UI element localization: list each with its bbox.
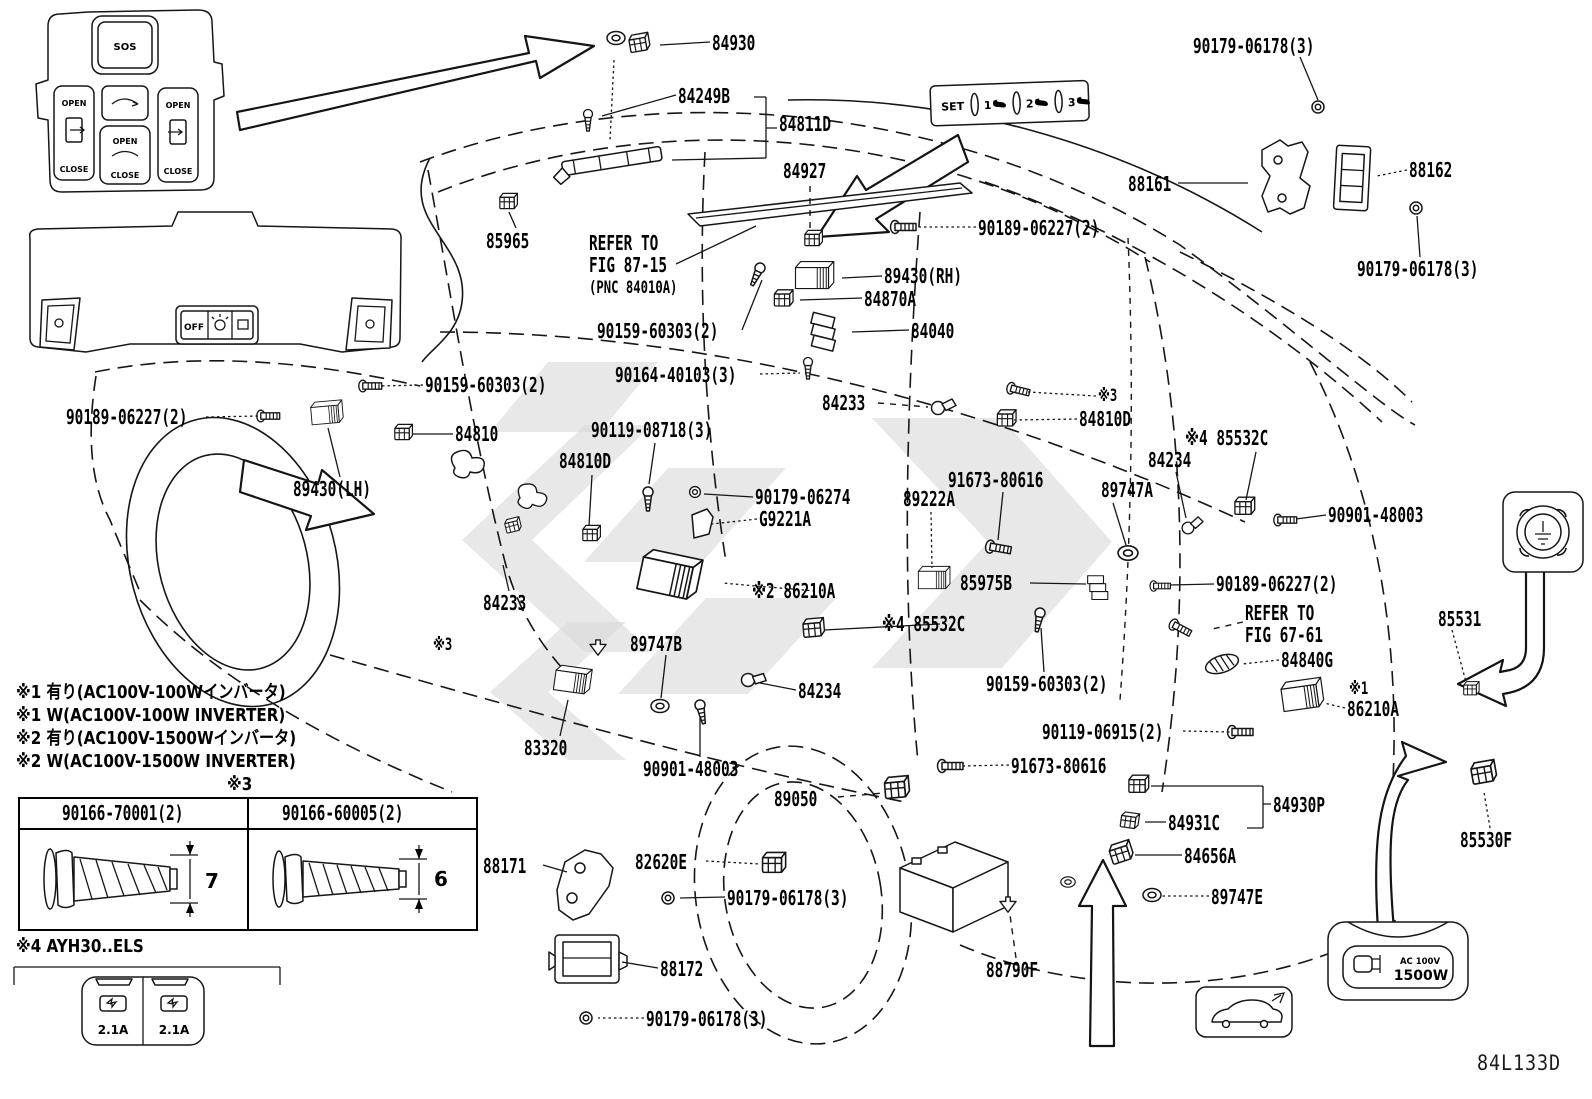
part-label: 84234 (1148, 450, 1191, 470)
fastener-table: 90166-70001(2) 90166-60005(2) 7 6 (18, 797, 478, 931)
part-label: ※4 85532C (1185, 428, 1268, 448)
part-label: 90159-60303(2) (425, 375, 546, 395)
part-label: 84810D (1079, 409, 1131, 429)
part-label: 84249B (678, 86, 730, 106)
part-label: 84930 (712, 33, 755, 53)
part-label: (PNC 84010A) (589, 280, 677, 297)
part-label: 88172 (660, 959, 703, 979)
part-label: 90179-06178(3) (1357, 259, 1478, 279)
parts-diagram-canvas: SOS OPEN CLOSE OPEN CLOSE OPEN CLOSE OFF… (0, 0, 1592, 1099)
part-label: 90179-06178(3) (646, 1009, 767, 1029)
part-label: 90189-06227(2) (978, 218, 1099, 238)
part-label: 84040 (911, 321, 954, 341)
part-label: 90179-06178(3) (727, 888, 848, 908)
part-label: 84930P (1273, 795, 1325, 815)
part-label: 85530F (1460, 830, 1512, 850)
part-label: 90901-48003 (1328, 505, 1423, 525)
footnote: ※3 (227, 776, 252, 794)
part-label: 90189-06227(2) (1216, 574, 1337, 594)
screw-dim-6: 6 (434, 867, 448, 891)
part-label: 90159-60303(2) (986, 674, 1107, 694)
part-label: G9221A (759, 509, 811, 529)
part-label: 91673-80616 (948, 470, 1043, 490)
part-label: 84840G (1281, 650, 1333, 670)
part-label: FIG 67-61 (1245, 625, 1323, 645)
screw-drawing-7mm: 7 (20, 829, 246, 928)
part-label: ※3 (433, 637, 452, 654)
part-label: 90159-60303(2) (597, 321, 718, 341)
part-label: 83320 (524, 738, 567, 758)
part-label: ※1 (1349, 681, 1368, 698)
footnote: ※1 有り(AC100V-100Wインバータ) (16, 684, 286, 702)
part-label: 85965 (486, 231, 529, 251)
fastener-col1-header: 90166-70001(2) (62, 803, 183, 823)
fastener-col2-header: 90166-60005(2) (282, 803, 403, 823)
footnote: ※1 W(AC100V-100W INVERTER) (16, 707, 285, 725)
part-label: ※2 86210A (752, 581, 835, 601)
part-label: ※4 85532C (882, 614, 965, 634)
part-label: 89430(LH) (293, 479, 371, 499)
part-label: 84927 (783, 161, 826, 181)
part-label: 88161 (1128, 174, 1171, 194)
part-label: REFER TO (1245, 603, 1314, 623)
part-label: 88162 (1409, 160, 1452, 180)
footnote: ※4 AYH30..ELS (16, 938, 144, 956)
part-label: FIG 87-15 (589, 255, 667, 275)
part-label: 90189-06227(2) (66, 407, 187, 427)
part-label: 91673-80616 (1011, 756, 1106, 776)
screw-dim-7: 7 (205, 869, 219, 893)
part-label: 89747B (630, 634, 682, 654)
part-label: 82620E (635, 852, 687, 872)
part-label: 88171 (483, 856, 526, 876)
part-label: 89430(RH) (884, 266, 962, 286)
part-label: 90179-06178(3) (1193, 36, 1314, 56)
part-label: 85975B (960, 573, 1012, 593)
part-label: 89747E (1211, 887, 1263, 907)
footnote: ※2 W(AC100V-1500W INVERTER) (16, 753, 296, 771)
part-label: 89050 (774, 789, 817, 809)
part-label: ※3 (1098, 388, 1117, 405)
part-label: 90901-48003 (643, 759, 738, 779)
part-label: 90119-06915(2) (1042, 722, 1163, 742)
part-label: 90164-40103(3) (615, 365, 736, 385)
part-label: 90119-08718(3) (591, 420, 712, 440)
part-label: 84931C (1168, 813, 1220, 833)
part-label: 84234 (798, 681, 841, 701)
figure-code: 84L133D (1477, 1053, 1561, 1074)
part-label: 84233 (822, 393, 865, 413)
part-label: 84810D (559, 451, 611, 471)
part-label: 86210A (1347, 699, 1399, 719)
part-label: 88790F (986, 960, 1038, 980)
part-label: 89747A (1101, 480, 1153, 500)
part-label: 89222A (903, 489, 955, 509)
screw-drawing-6mm: 6 (249, 829, 475, 928)
footnote: ※2 有り(AC100V-1500Wインバータ) (16, 730, 296, 748)
part-label: 84233 (483, 593, 526, 613)
part-label: 84811D (779, 114, 831, 134)
part-label: 90179-06274 (755, 487, 850, 507)
part-labels-layer: 8493084249B84811D8492790179-06178(3)8816… (0, 0, 1592, 1099)
part-label: 84870A (864, 289, 916, 309)
part-label: 84810 (455, 424, 498, 444)
part-label: 85531 (1438, 609, 1481, 629)
part-label: 84656A (1184, 846, 1236, 866)
part-label: REFER TO (589, 233, 658, 253)
